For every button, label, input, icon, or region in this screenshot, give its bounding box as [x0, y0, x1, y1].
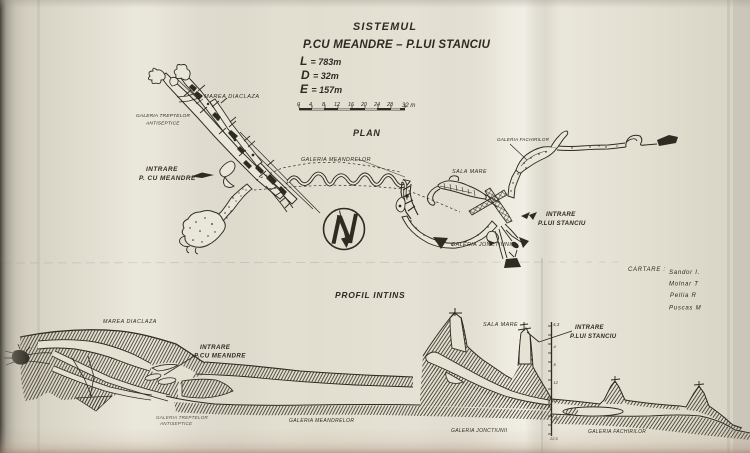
svg-text:GALERIA JONCTIUNII: GALERIA JONCTIUNII: [451, 242, 513, 248]
svg-text:28: 28: [386, 102, 394, 108]
svg-text:GALERIA TREPTELOR: GALERIA TREPTELOR: [156, 415, 208, 420]
svg-text:L = 783m: L = 783m: [300, 54, 341, 68]
svg-text:P.LUI STANCIU: P.LUI STANCIU: [570, 334, 617, 340]
svg-text:SALA MARE: SALA MARE: [483, 322, 518, 328]
svg-text:4,3: 4,3: [553, 322, 560, 327]
svg-text:Puscas M: Puscas M: [669, 305, 702, 312]
svg-text:20: 20: [360, 102, 368, 108]
svg-text:16: 16: [348, 102, 355, 108]
svg-text:GALERIA TREPTELOR: GALERIA TREPTELOR: [136, 113, 190, 119]
svg-text:ANTISEPTICE: ANTISEPTICE: [145, 121, 180, 127]
svg-text:32 m: 32 m: [402, 103, 415, 109]
svg-text:Molnar T: Molnar T: [669, 281, 699, 288]
svg-text:PLAN: PLAN: [353, 128, 381, 138]
svg-text:P.LUI STANCIU: P.LUI STANCIU: [538, 220, 586, 227]
svg-text:GALERIA FACHIRILOR: GALERIA FACHIRILOR: [497, 137, 550, 142]
svg-text:GALERIA MEANDRELOR: GALERIA MEANDRELOR: [289, 418, 354, 424]
svg-text:Pellia R: Pellia R: [670, 292, 697, 299]
svg-text:CARTARE :: CARTARE :: [628, 267, 666, 273]
svg-text:P. CU MEANDRE: P. CU MEANDRE: [139, 175, 196, 182]
svg-text:PROFIL INTINS: PROFIL INTINS: [335, 290, 405, 300]
svg-text:12: 12: [334, 102, 340, 108]
svg-text:SALA MARE: SALA MARE: [452, 169, 487, 175]
svg-text:INTRARE: INTRARE: [575, 325, 604, 331]
svg-text:SISTEMUL: SISTEMUL: [353, 21, 417, 33]
svg-text:P.CU MEANDRE: P.CU MEANDRE: [194, 353, 246, 360]
svg-text:4: 4: [309, 102, 312, 108]
svg-text:MAREA DIACLAZA: MAREA DIACLAZA: [103, 319, 157, 325]
svg-text:12: 12: [554, 380, 559, 385]
svg-text:P.CU MEANDRE – P.LUI STANCIU: P.CU MEANDRE – P.LUI STANCIU: [303, 39, 491, 51]
svg-text:ANTISEPTICE: ANTISEPTICE: [159, 421, 193, 426]
svg-text:INTRARE: INTRARE: [146, 166, 178, 173]
svg-text:Sandor I.: Sandor I.: [669, 269, 700, 276]
svg-text:INTRARE: INTRARE: [200, 344, 231, 351]
svg-text:INTRARE: INTRARE: [546, 211, 576, 218]
svg-text:24: 24: [373, 102, 380, 108]
svg-text:E = 157m: E = 157m: [300, 82, 342, 96]
svg-text:D = 32m: D = 32m: [301, 68, 339, 82]
svg-text:MAREA DIACLAZA: MAREA DIACLAZA: [204, 94, 260, 100]
